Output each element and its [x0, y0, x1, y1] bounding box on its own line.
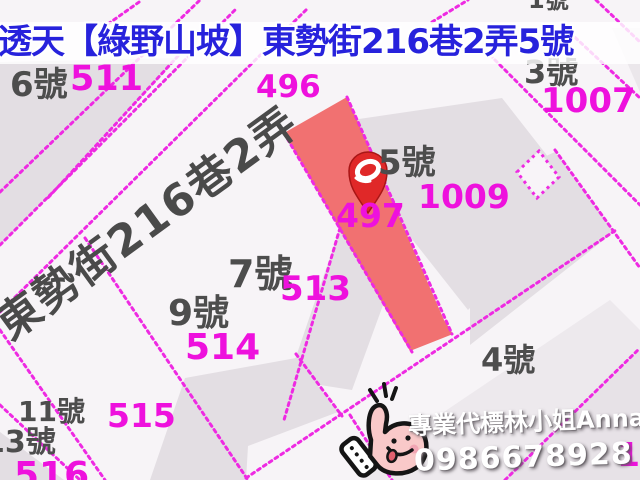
parcel-number-label: 1009	[418, 180, 510, 213]
parcel-number-label: 511	[70, 62, 143, 97]
parcel-number-label: 515	[107, 399, 176, 432]
parcel-number-label: 497	[336, 199, 405, 232]
real-estate-map-ad: 東勢街216巷2弄 6號3號5號7號9號4號11號13號1號5114961007…	[0, 0, 640, 480]
phone-number-watermark: 0986678928	[414, 439, 634, 477]
house-number-label: 6號	[10, 68, 68, 102]
parcel-number-label: 1007	[541, 84, 636, 118]
parcel-number-label: 496	[256, 72, 321, 103]
house-number-label: 11號	[18, 398, 85, 426]
house-number-label: 5號	[378, 146, 436, 180]
listing-title: 透天【綠野山坡】東勢街216巷2弄5號	[0, 25, 640, 59]
parcel-number-label: 516	[14, 458, 89, 480]
emphasis-marks	[370, 384, 396, 401]
house-number-label: 4號	[481, 344, 535, 376]
parcel-number-label: 513	[280, 272, 351, 306]
house-number-label: 13號	[0, 428, 56, 458]
parcel-number-label: 514	[185, 330, 260, 366]
house-number-label: 1號	[528, 0, 569, 12]
